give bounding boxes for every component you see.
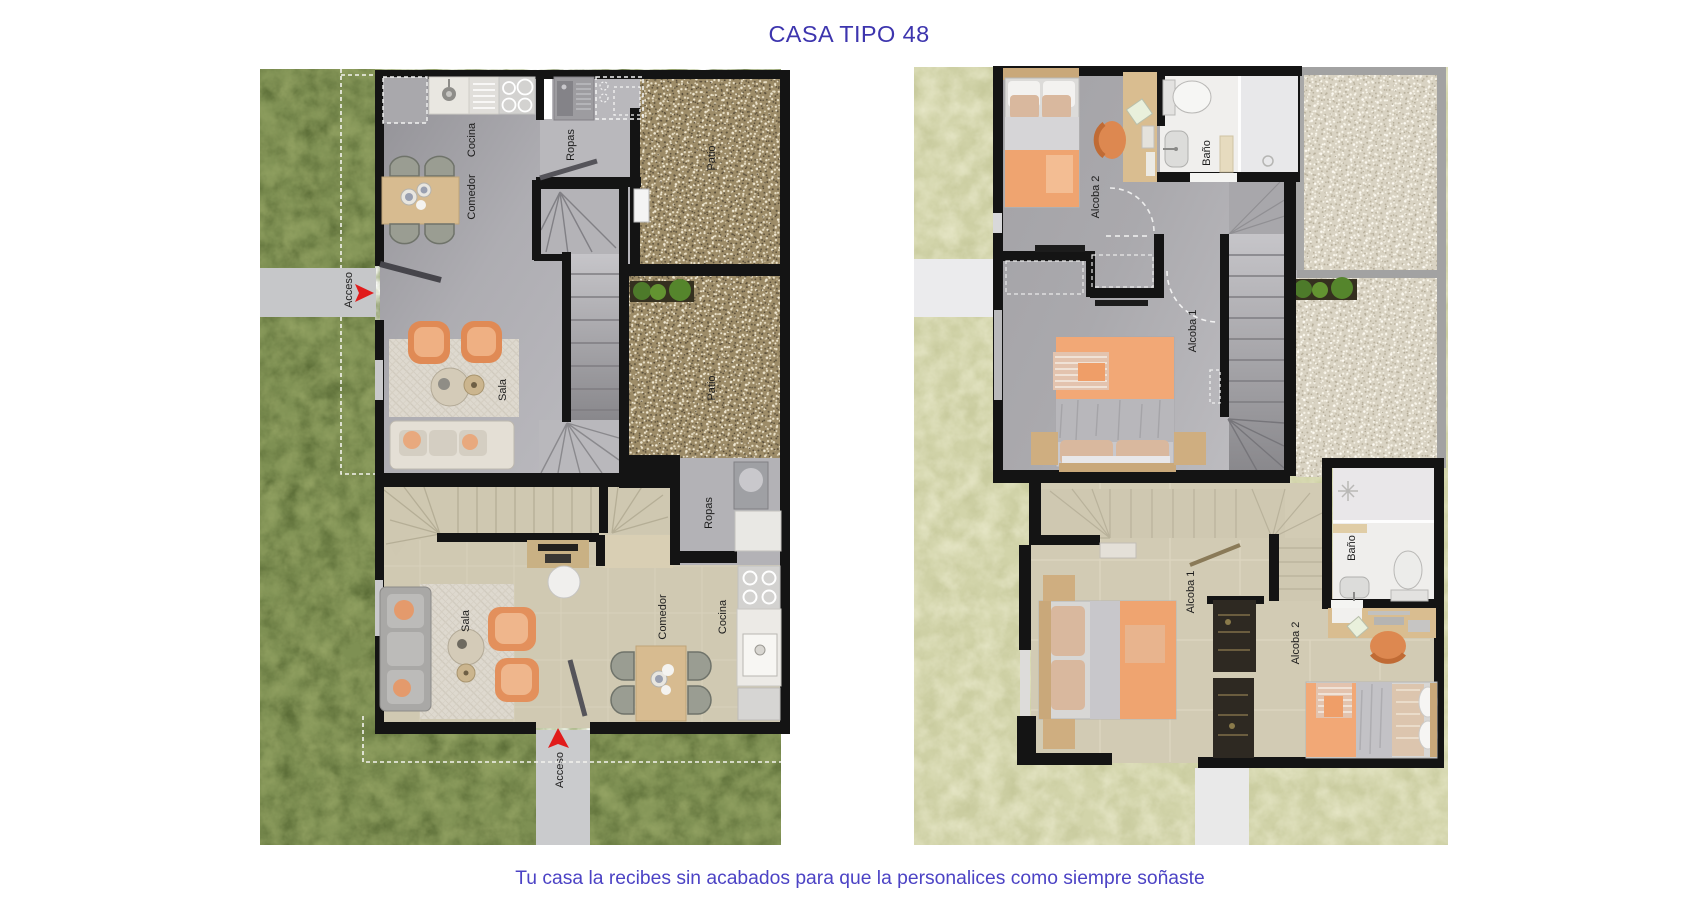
svg-text:Baño: Baño: [1201, 140, 1213, 166]
svg-text:Alcoba 1: Alcoba 1: [1185, 571, 1197, 614]
svg-text:Patio: Patio: [706, 375, 718, 400]
svg-text:Acceso: Acceso: [554, 752, 566, 788]
svg-text:Sala: Sala: [497, 378, 509, 401]
svg-text:Patio: Patio: [706, 145, 718, 170]
svg-text:Comedor: Comedor: [657, 594, 669, 640]
svg-text:Alcoba 2: Alcoba 2: [1090, 176, 1102, 219]
svg-text:Ropas: Ropas: [703, 497, 715, 529]
svg-text:Alcoba 2: Alcoba 2: [1290, 622, 1302, 665]
svg-text:Sala: Sala: [460, 609, 472, 632]
svg-text:Tu casa la recibes sin acabado: Tu casa la recibes sin acabados para que…: [515, 868, 1205, 889]
svg-text:Alcoba 1: Alcoba 1: [1187, 310, 1199, 353]
svg-text:CASA TIPO 48: CASA TIPO 48: [768, 21, 929, 47]
svg-text:Ropas: Ropas: [565, 129, 577, 161]
svg-text:Baño: Baño: [1346, 535, 1358, 561]
svg-text:Cocina: Cocina: [717, 599, 729, 634]
svg-text:Acceso: Acceso: [343, 272, 355, 308]
svg-text:Cocina: Cocina: [466, 122, 478, 157]
svg-text:Comedor: Comedor: [466, 174, 478, 220]
